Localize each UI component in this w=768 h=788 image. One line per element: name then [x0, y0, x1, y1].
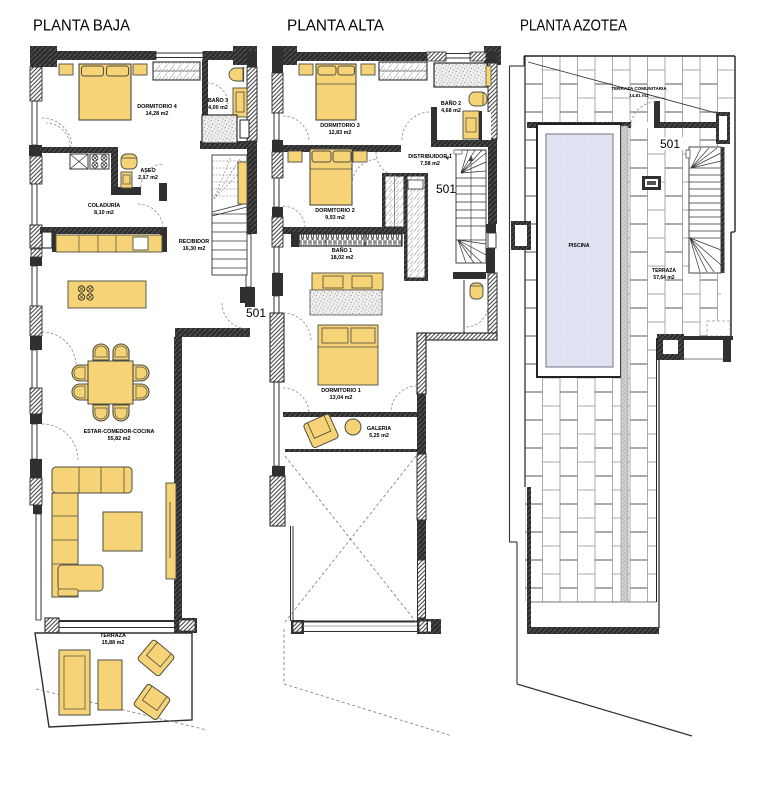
svg-text:ESTAR-COMEDOR-COCINA: ESTAR-COMEDOR-COCINA	[84, 429, 155, 435]
svg-text:4,68 m2: 4,68 m2	[441, 108, 461, 114]
svg-text:RECIBIDOR: RECIBIDOR	[179, 239, 209, 245]
svg-text:DORMITORIO 2: DORMITORIO 2	[315, 208, 354, 214]
svg-text:5,25 m2: 5,25 m2	[369, 433, 389, 439]
svg-text:PISCINA: PISCINA	[568, 243, 589, 249]
svg-text:PLANTA BAJA: PLANTA BAJA	[33, 18, 130, 35]
svg-text:ASEO: ASEO	[140, 168, 155, 174]
svg-text:COLADURÍA: COLADURÍA	[88, 201, 120, 209]
svg-text:9,93 m2: 9,93 m2	[325, 215, 345, 221]
svg-text:14,28 m2: 14,28 m2	[146, 111, 169, 117]
svg-text:4,00 m2: 4,00 m2	[208, 105, 228, 111]
svg-text:18,02 m2: 18,02 m2	[331, 255, 354, 261]
svg-text:GALERIA: GALERIA	[367, 426, 391, 432]
svg-text:PLANTA AZOTEA: PLANTA AZOTEA	[520, 18, 627, 35]
svg-text:16,30 m2: 16,30 m2	[183, 246, 206, 252]
svg-text:TERRAZA: TERRAZA	[652, 268, 676, 274]
svg-text:BAÑO 2: BAÑO 2	[441, 100, 461, 107]
svg-text:13,04 m2: 13,04 m2	[330, 395, 353, 401]
svg-text:DISTRIBUIDOR 1: DISTRIBUIDOR 1	[408, 154, 451, 160]
svg-text:12,83 m2: 12,83 m2	[329, 130, 352, 136]
svg-text:7,58 m2: 7,58 m2	[420, 161, 440, 167]
svg-text:2,17 m2: 2,17 m2	[138, 175, 158, 181]
svg-text:PLANTA ALTA: PLANTA ALTA	[287, 18, 384, 35]
svg-text:14,81 m2: 14,81 m2	[629, 93, 649, 98]
svg-text:DORMITORIO 3: DORMITORIO 3	[320, 123, 359, 129]
svg-text:DORMITORIO 1: DORMITORIO 1	[321, 388, 360, 394]
svg-text:501: 501	[436, 182, 456, 196]
svg-text:8,10 m2: 8,10 m2	[94, 210, 114, 216]
svg-text:TERRAZA: TERRAZA	[100, 633, 126, 639]
svg-text:BAÑO 1: BAÑO 1	[332, 247, 352, 254]
svg-text:TERRAZA COMUNITARIA: TERRAZA COMUNITARIA	[611, 86, 667, 91]
svg-text:501: 501	[246, 306, 266, 320]
svg-text:501: 501	[660, 137, 680, 151]
svg-text:DORMITORIO 4: DORMITORIO 4	[137, 104, 176, 110]
svg-text:55,82 m2: 55,82 m2	[108, 436, 131, 442]
svg-text:57,64 m2: 57,64 m2	[653, 275, 674, 281]
svg-text:BAÑO 3: BAÑO 3	[208, 97, 228, 104]
svg-text:15,88 m2: 15,88 m2	[102, 640, 125, 646]
